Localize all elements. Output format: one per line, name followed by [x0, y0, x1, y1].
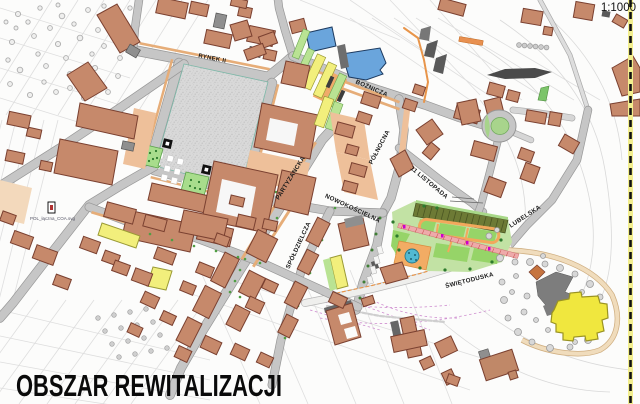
svg-text:1:1000: 1:1000 — [601, 2, 636, 14]
svg-text:OBSZAR REWITALIZACJI: OBSZAR REWITALIZACJI — [16, 369, 282, 403]
svg-text:POL_łączna_COA.svg: POL_łączna_COA.svg — [30, 216, 76, 221]
